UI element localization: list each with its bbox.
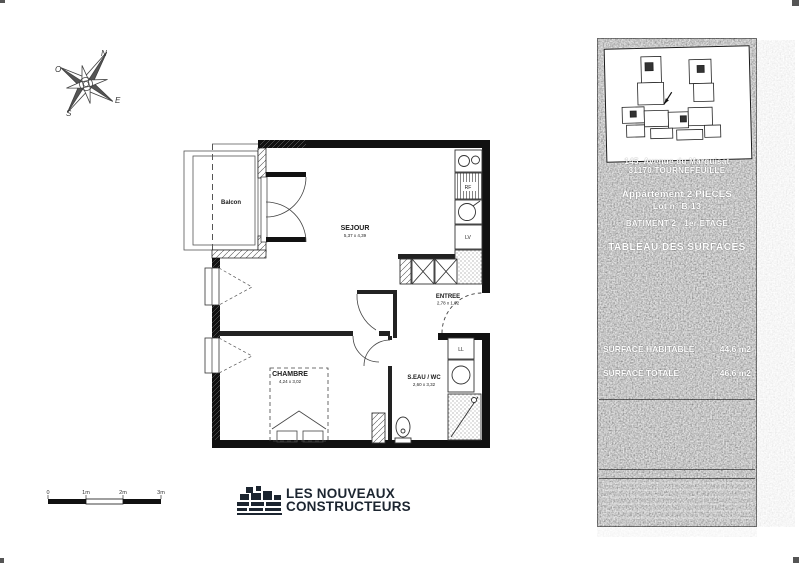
floor-plan-document: N O E S xyxy=(0,0,799,565)
balcony-outline xyxy=(184,144,258,250)
bathroom-label: S.EAU / WC xyxy=(407,375,441,381)
window-chambre xyxy=(205,338,252,373)
site-plan-sketch xyxy=(605,46,750,159)
chambre-dimensions: 4,24 x 3,02 xyxy=(279,379,302,384)
sink-unit xyxy=(455,150,482,172)
window-sejour xyxy=(205,268,252,305)
building-floor: BATIMENT 2 - 1er ETAGE xyxy=(597,219,757,228)
address-line2: 31170 TOURNEFEUILLE xyxy=(597,166,757,175)
storage-unit xyxy=(455,250,482,284)
panel-divider xyxy=(599,478,755,479)
compass-rose: N O E S xyxy=(42,36,133,130)
toilet xyxy=(396,417,410,437)
surface-table-title: TABLEAU DES SURFACES xyxy=(597,242,757,253)
duct xyxy=(372,413,385,443)
lot-number: Lot n° B-13 xyxy=(597,201,757,211)
surface-totale-value: 46.6 m2 xyxy=(720,368,751,378)
bathroom-dimensions: 2,60 x 3,32 xyxy=(413,382,436,387)
surface-totale-label: SURFACE TOTALE xyxy=(603,368,679,378)
compass-north-label: N xyxy=(101,49,107,58)
surface-totale-row: SURFACE TOTALE 46.6 m2 xyxy=(603,368,751,378)
apartment-type: Appartement 2 PIECES xyxy=(597,189,757,200)
illegible-fine-print xyxy=(602,482,752,522)
builder-logo-icon xyxy=(237,486,282,515)
noise-fade-strip xyxy=(757,40,795,527)
compass-east-label: E xyxy=(115,96,121,105)
builder-logo: LES NOUVEAUX CONSTRUCTEURS xyxy=(286,487,411,513)
compass-west-label: O xyxy=(55,65,61,74)
address-line1: 145, Avenue du Marquisat xyxy=(597,157,757,166)
entree-dimensions: 2,78 x 1,92 xyxy=(437,301,460,306)
room-labels: Balcon SEJOUR 5,37 x 4,39 CHAMBRE 4,24 x… xyxy=(221,185,472,387)
panel-divider xyxy=(599,399,755,400)
apartment-plan: Balcon SEJOUR 5,37 x 4,39 CHAMBRE 4,24 x… xyxy=(184,140,490,448)
site-plan-thumbnail xyxy=(604,45,753,163)
compass-south-label: S xyxy=(66,109,72,118)
entry-closet xyxy=(400,259,457,284)
fridge-label: RF xyxy=(465,185,472,191)
balcony-label: Balcon xyxy=(221,200,241,206)
kitchen-units xyxy=(455,150,482,284)
scale-bar: 0 1m 2m 3m xyxy=(46,490,165,504)
sejour-dimensions: 5,37 x 4,39 xyxy=(344,233,367,238)
surface-habitable-row: SURFACE HABITABLE 44.6 m2 xyxy=(603,344,751,354)
logo-line2: CONSTRUCTEURS xyxy=(286,500,411,513)
info-panel: 145, Avenue du Marquisat 31170 TOURNEFEU… xyxy=(597,38,757,527)
surface-habitable-value: 44.6 m2 xyxy=(720,344,751,354)
surface-habitable-label: SURFACE HABITABLE xyxy=(603,344,694,354)
noise-bottom-strip xyxy=(597,527,757,537)
chambre-label: CHAMBRE xyxy=(272,371,308,378)
panel-divider xyxy=(599,469,755,470)
washing-machine-label: LL xyxy=(458,347,464,353)
sejour-label: SEJOUR xyxy=(341,225,370,232)
entree-label: ENTREE xyxy=(436,294,460,300)
balcony-french-door xyxy=(261,172,306,242)
dishwasher-label: LV xyxy=(465,235,471,241)
